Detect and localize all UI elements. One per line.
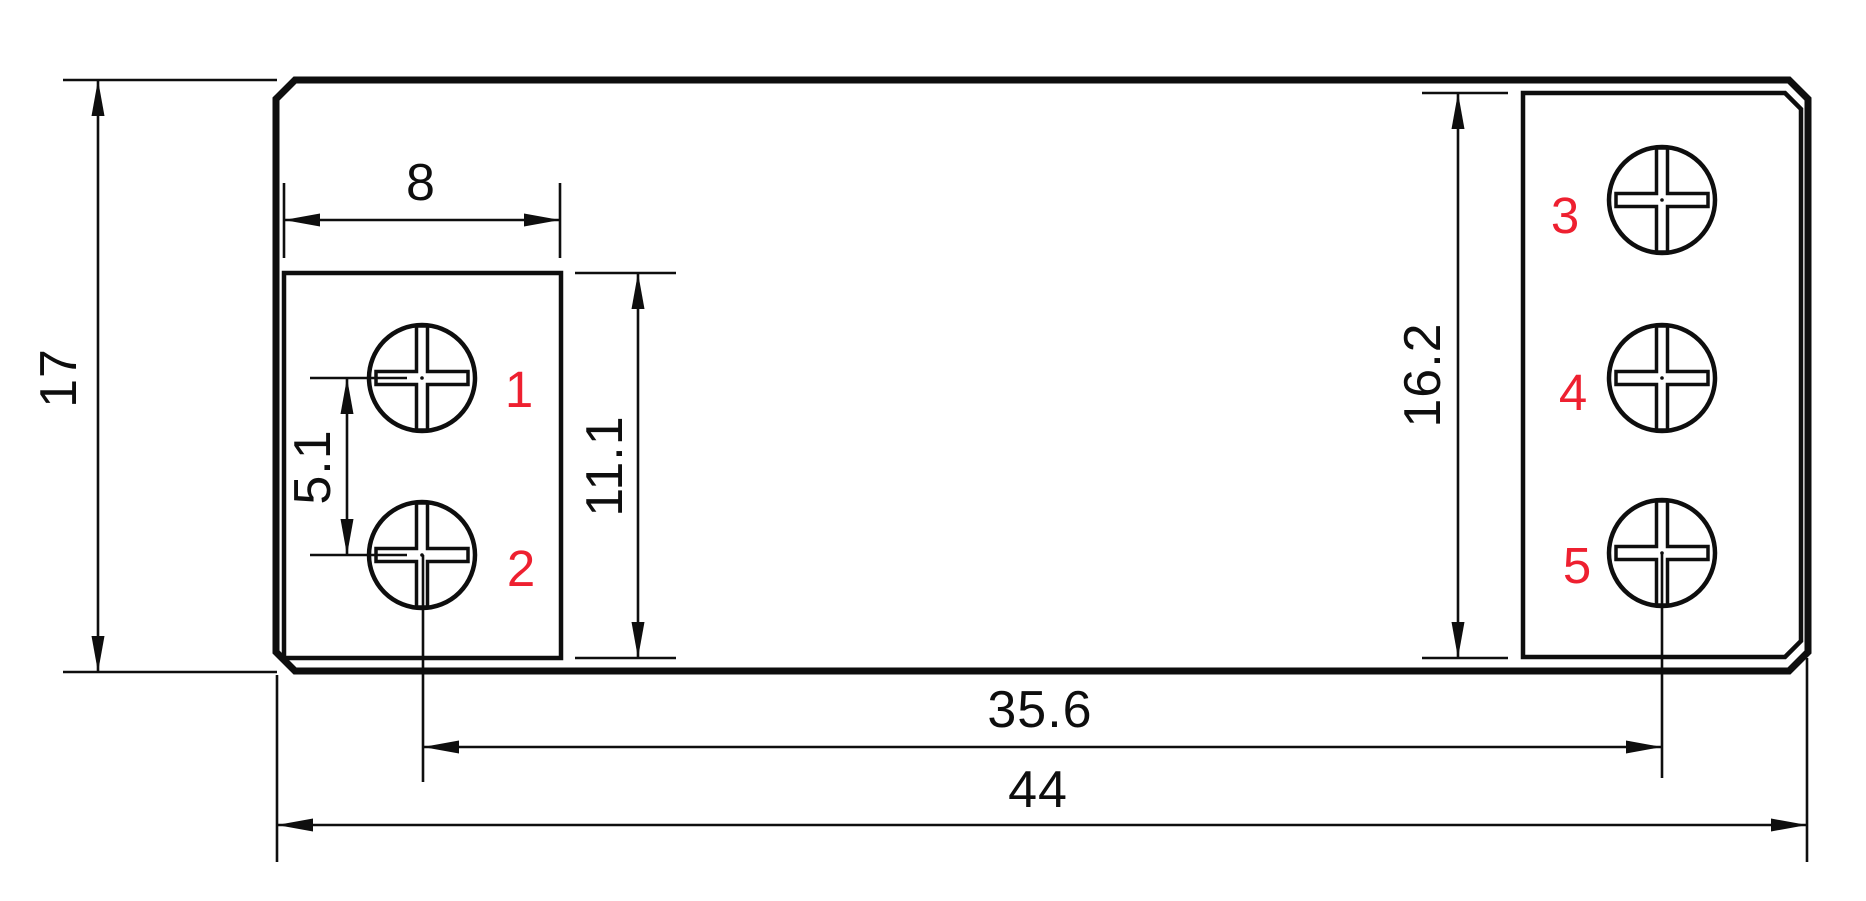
terminal-label-4: 4 — [1559, 364, 1587, 421]
drawing-canvas: 17 8 5.1 11.1 16.2 35.6 — [0, 0, 1866, 901]
arrowhead-up — [1452, 93, 1465, 129]
arrowhead-left — [423, 741, 459, 754]
dimension-left-pad-width: 8 — [284, 154, 560, 258]
terminal-label-2: 2 — [507, 540, 535, 597]
arrowhead-up — [632, 273, 645, 309]
arrowhead-down — [92, 636, 105, 672]
terminal-label-5: 5 — [1563, 537, 1591, 594]
screw-terminal-3 — [1609, 147, 1715, 253]
dimension-value: 16.2 — [1394, 322, 1452, 427]
dimension-value: 11.1 — [576, 415, 634, 516]
terminal-label-3: 3 — [1551, 187, 1579, 244]
dimension-value: 17 — [30, 348, 88, 408]
arrowhead-left — [277, 819, 313, 832]
terminal-label-1: 1 — [505, 361, 533, 418]
arrowhead-right — [1626, 741, 1662, 754]
dimension-right-pad-height: 16.2 — [1394, 93, 1508, 658]
dimension-terminal-span: 35.6 — [423, 681, 1662, 754]
arrowhead-down — [341, 519, 354, 555]
arrowhead-left — [284, 214, 320, 227]
screw-terminal-4 — [1609, 325, 1715, 431]
arrowhead-down — [1452, 622, 1465, 658]
dimension-value: 8 — [406, 154, 436, 212]
arrowhead-right — [1771, 819, 1807, 832]
dimension-value: 44 — [1008, 761, 1068, 819]
screw-center-dot — [420, 376, 424, 380]
screw-center-dot — [1660, 376, 1664, 380]
dimension-drawing: 17 8 5.1 11.1 16.2 35.6 — [0, 0, 1866, 901]
dimension-value: 5.1 — [284, 429, 342, 504]
arrowhead-down — [632, 622, 645, 658]
dimension-terminal-pitch: 5.1 — [284, 378, 354, 555]
arrowhead-up — [92, 80, 105, 116]
dimension-value: 35.6 — [987, 681, 1092, 739]
dimension-overall-height: 17 — [30, 80, 277, 672]
arrowhead-up — [341, 378, 354, 414]
arrowhead-right — [524, 214, 560, 227]
screw-center-dot — [1660, 198, 1664, 202]
dimension-left-pad-height: 11.1 — [575, 273, 676, 658]
